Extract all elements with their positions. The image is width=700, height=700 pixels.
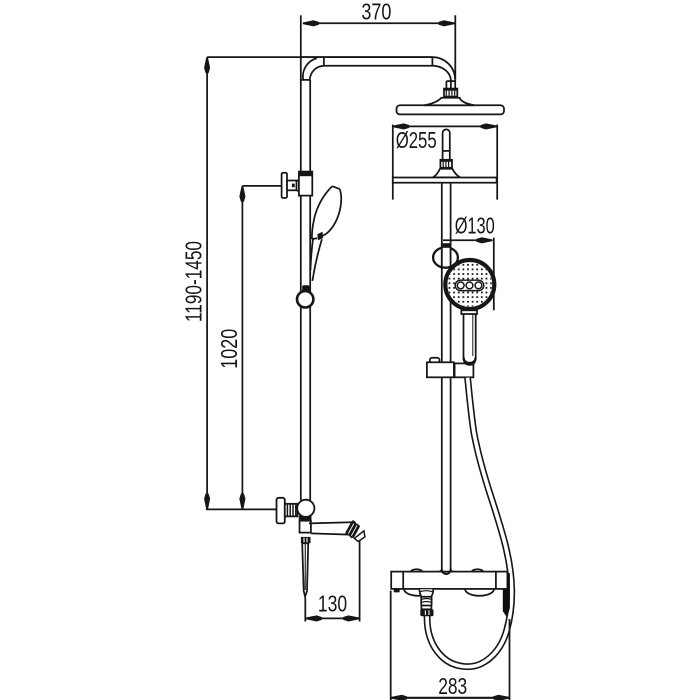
svg-text:1020: 1020 xyxy=(216,329,242,369)
svg-text:283: 283 xyxy=(438,673,467,699)
svg-text:Ø255: Ø255 xyxy=(396,127,437,153)
svg-text:Ø130: Ø130 xyxy=(455,213,495,239)
svg-text:1190-1450: 1190-1450 xyxy=(180,241,206,322)
svg-text:130: 130 xyxy=(318,591,347,617)
svg-text:370: 370 xyxy=(361,0,391,25)
